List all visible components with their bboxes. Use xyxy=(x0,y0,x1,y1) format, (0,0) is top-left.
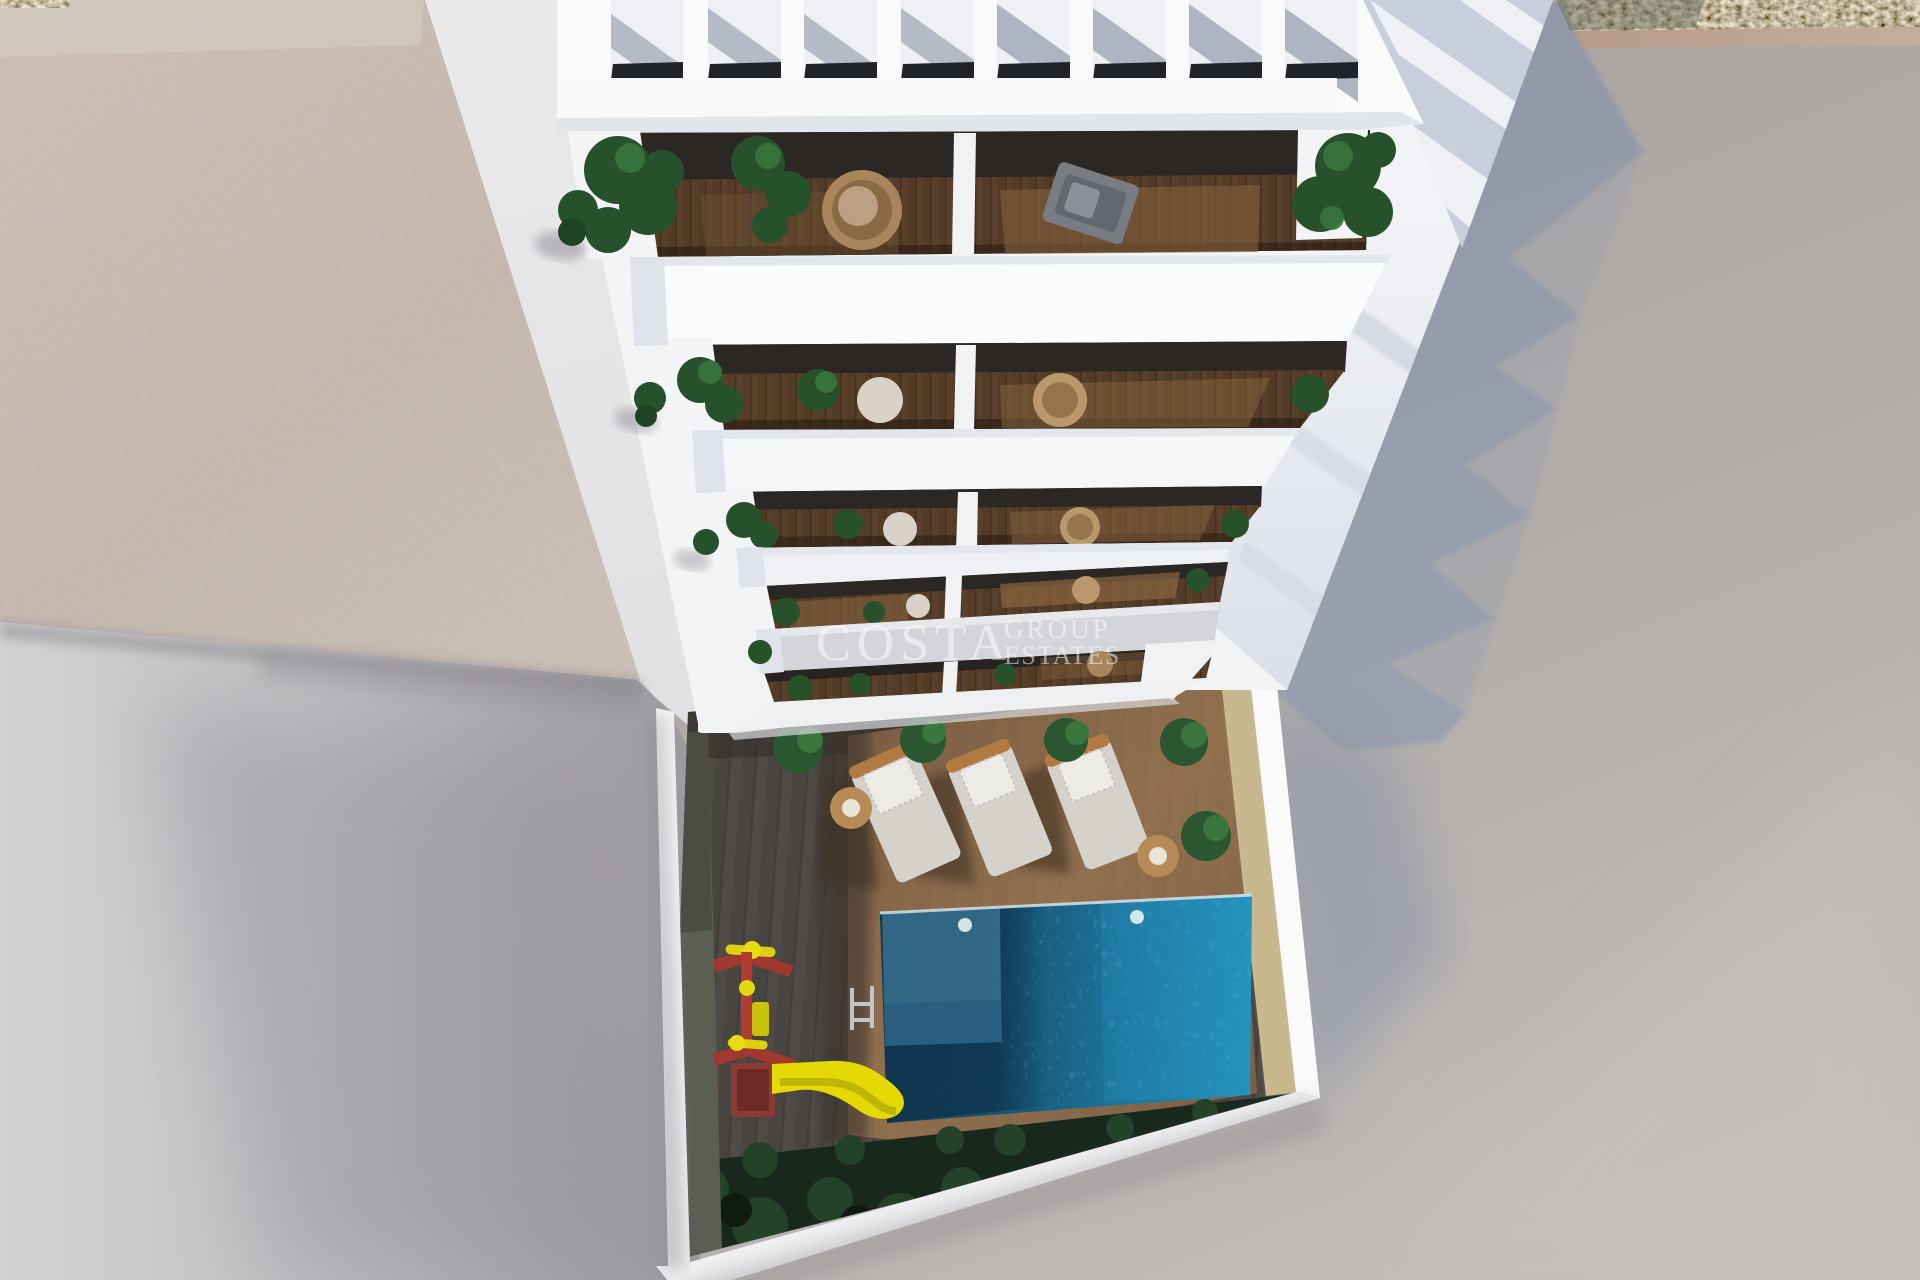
svg-text:COSTA: COSTA xyxy=(816,615,1012,672)
svg-text:ESTATES: ESTATES xyxy=(1004,641,1121,670)
svg-text:GROUP: GROUP xyxy=(1004,614,1111,644)
